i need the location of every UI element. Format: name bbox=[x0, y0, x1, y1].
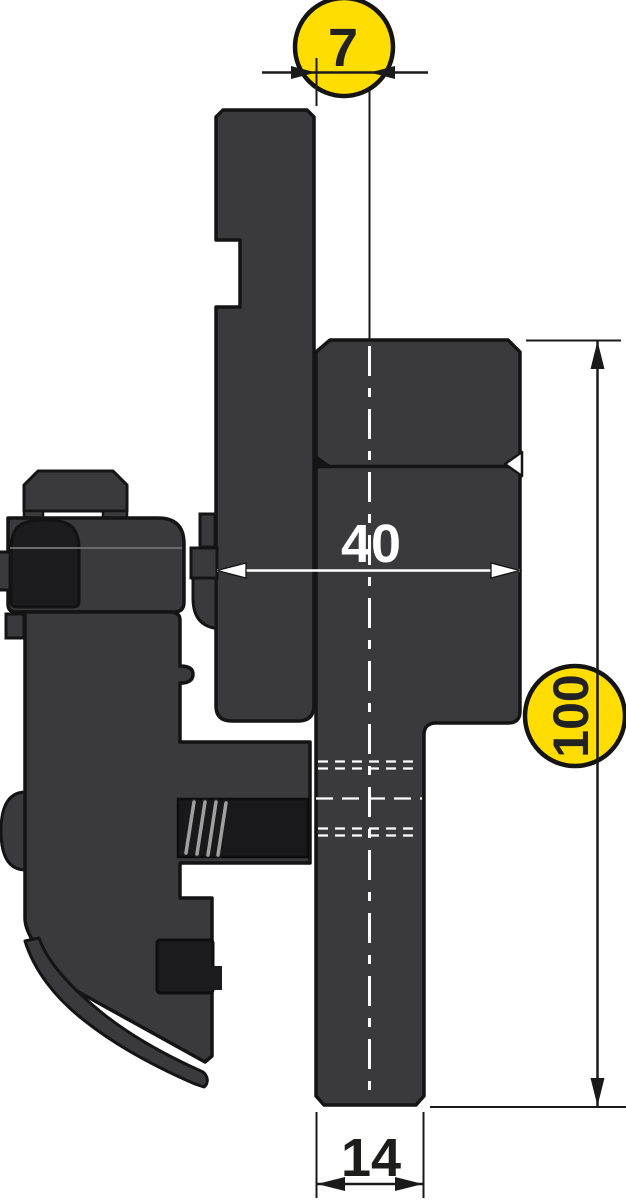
clamp-tab-left-upper bbox=[0, 552, 10, 590]
clamp-pad-tab bbox=[211, 966, 222, 990]
dimension-label: 14 bbox=[341, 1128, 401, 1188]
punch-outline bbox=[316, 340, 520, 1105]
clamp-pad bbox=[157, 940, 213, 993]
technical-drawing: 40 7 100 14 bbox=[0, 0, 626, 1200]
upper-plate-body bbox=[216, 110, 314, 721]
clamp-pin-lower bbox=[191, 548, 217, 578]
dimension-label: 7 bbox=[328, 18, 358, 78]
punch-block bbox=[316, 340, 522, 1105]
dimension-14: 14 bbox=[317, 1112, 424, 1198]
clamp-cap bbox=[24, 471, 127, 511]
dimension-7: 7 bbox=[262, 0, 428, 106]
clamp-cylinder bbox=[11, 520, 79, 607]
arrowhead-top bbox=[591, 341, 605, 369]
clamp-tab-left-mid bbox=[6, 614, 24, 638]
dimension-label: 40 bbox=[341, 514, 401, 574]
dimension-label: 100 bbox=[543, 674, 599, 757]
clamp-pin-upper bbox=[200, 514, 215, 547]
arrowhead-bottom bbox=[591, 1078, 605, 1106]
upper-plate bbox=[216, 110, 314, 721]
drawing-canvas: 40 7 100 14 bbox=[0, 0, 626, 1200]
clamp-side-bump bbox=[1, 792, 26, 870]
clamp-hook bbox=[193, 578, 216, 628]
